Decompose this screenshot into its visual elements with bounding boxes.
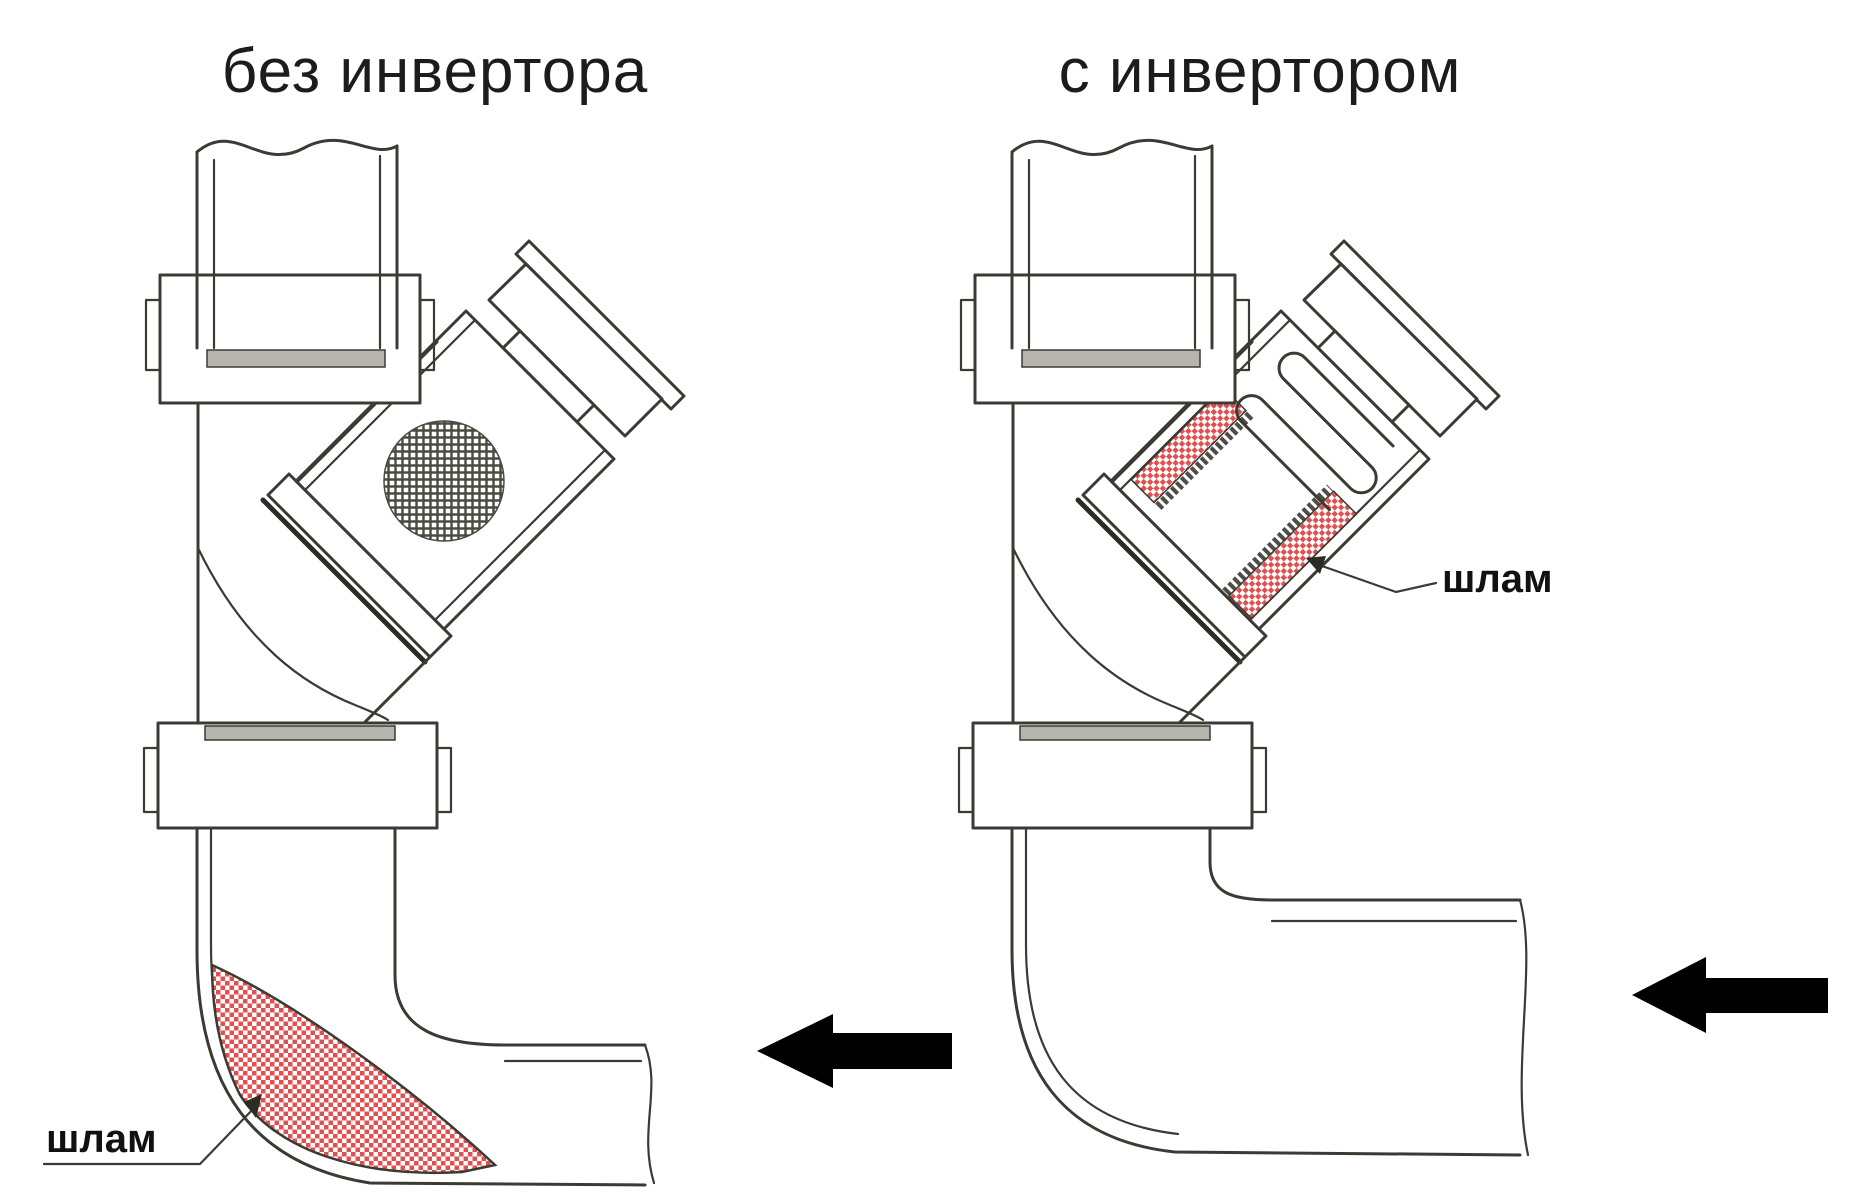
upper-coupling <box>146 275 434 403</box>
lower-coupling-step-right <box>1252 748 1266 812</box>
pipe-break-wavy-edge <box>645 1045 654 1183</box>
diagram-without-inverter: шлам <box>44 140 952 1185</box>
upper-coupling-seam <box>1022 350 1200 367</box>
sludge-leader-right <box>1322 566 1436 592</box>
sludge-label-right: шлам <box>1442 557 1553 601</box>
piping-diagram-art: шлам <box>0 0 1875 1196</box>
upper-coupling <box>961 275 1249 403</box>
upper-coupling-step-left <box>146 300 160 370</box>
lower-coupling-step-right <box>437 748 451 812</box>
lower-coupling <box>959 723 1266 828</box>
sludge-label-left: шлам <box>46 1117 157 1161</box>
figure-canvas: без инвертора с инвертором <box>0 0 1875 1196</box>
lower-coupling-seam <box>1020 726 1210 740</box>
upper-coupling-step-left <box>961 300 975 370</box>
pipe-break-wavy-edge <box>1520 900 1528 1155</box>
mesh-screen <box>384 421 504 541</box>
lower-coupling-seam <box>205 726 395 740</box>
elbow-and-horizontal-pipe <box>1012 828 1528 1155</box>
lower-coupling-step-left <box>144 748 158 812</box>
flow-arrow-left-diagram <box>757 1014 952 1088</box>
flow-arrow-right-diagram <box>1632 957 1828 1033</box>
upper-coupling-seam <box>207 350 385 367</box>
lower-coupling <box>144 723 451 828</box>
diagram-with-inverter: шлам <box>959 140 1828 1155</box>
lower-coupling-step-left <box>959 748 973 812</box>
sludge-deposit-left <box>212 965 495 1173</box>
